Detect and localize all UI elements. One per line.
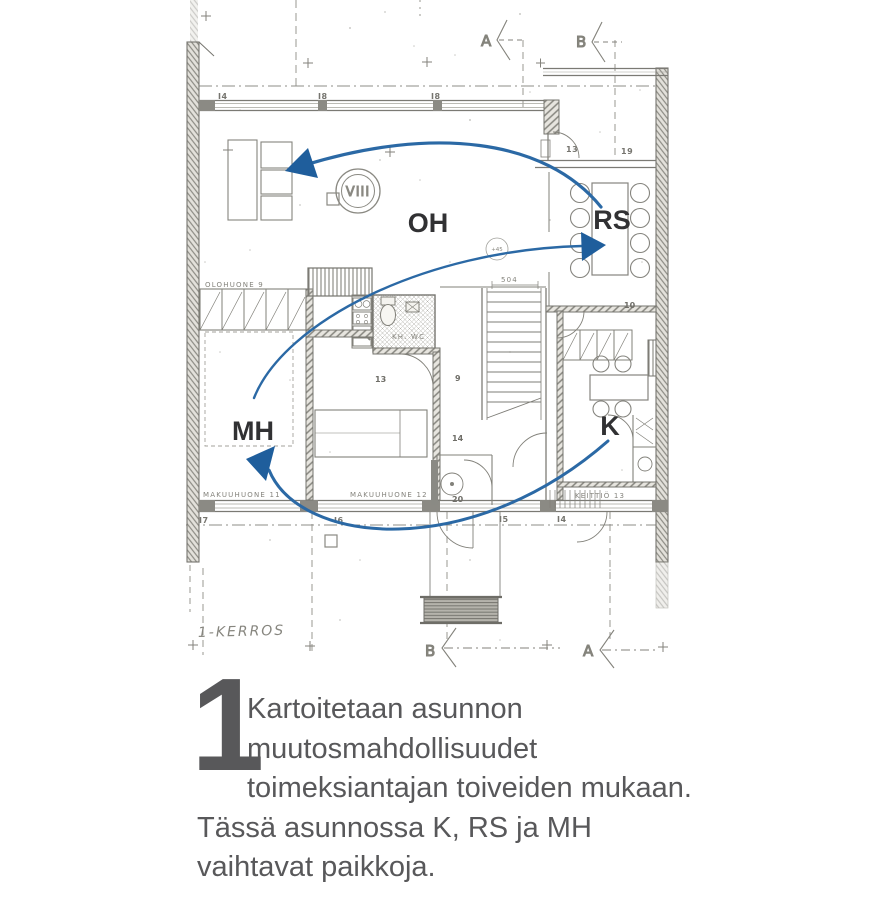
section-b-top-label: B xyxy=(576,33,586,51)
floor-plan-svg: VIII +45 A B B A OLOHUONE 9 MAKUUHUONE 1… xyxy=(0,0,874,680)
floor-level-label: 1-KERROS xyxy=(198,623,286,641)
window-i5: I5 xyxy=(499,515,509,524)
caption-line-5: vaihtavat paikkoja. xyxy=(197,848,817,888)
section-a-bottom-label: A xyxy=(583,642,594,660)
room-label-oh: OH xyxy=(408,208,449,238)
section-b-bottom-label: B xyxy=(425,642,435,660)
floor-plan: VIII +45 A B B A OLOHUONE 9 MAKUUHUONE 1… xyxy=(0,0,874,680)
caption-line-1: Kartoitetaan asunnon xyxy=(247,690,817,730)
step-number: 1 xyxy=(191,675,264,775)
dim-504: 504 xyxy=(501,276,518,284)
window-i8a: I8 xyxy=(318,92,328,101)
num-9: 9 xyxy=(455,374,461,383)
room-label-rs: RS xyxy=(593,205,631,235)
swap-arrowhead-rs xyxy=(581,232,606,261)
stamp-viii: VIII xyxy=(346,185,370,200)
caption: 1 Kartoitetaan asunnon muutosmahdollisuu… xyxy=(197,690,817,888)
num-10: 10 xyxy=(624,301,636,310)
caption-line-2: muutosmahdollisuudet xyxy=(247,730,817,770)
plan-annotations: OLOHUONE 9 MAKUUHUONE 11 MAKUUHUONE 12 K… xyxy=(198,92,636,641)
keittio-label: KEITTIÖ 13 xyxy=(575,491,625,500)
num-14: 14 xyxy=(452,434,464,443)
lamp-label: +45 xyxy=(491,247,503,253)
caption-line-3: toimeksiantajan toiveiden mukaan. xyxy=(247,769,817,809)
section-markers: A B B A xyxy=(425,20,655,668)
section-a-top-label: A xyxy=(481,32,492,50)
window-i7: I7 xyxy=(199,516,209,525)
num-13: 13 xyxy=(375,375,386,384)
makuuhuone12-label: MAKUUHUONE 12 xyxy=(350,491,428,499)
olohuone-label: OLOHUONE 9 xyxy=(205,281,264,289)
num-20: 20 xyxy=(452,495,464,504)
khwc-label: KH. WC xyxy=(392,333,425,341)
window-19: 19 xyxy=(621,147,633,156)
entrance-porch xyxy=(420,512,502,623)
window-i4: I4 xyxy=(218,92,228,101)
window-i4b: I4 xyxy=(557,515,567,524)
caption-line-4: Tässä asunnossa K, RS ja MH xyxy=(197,809,817,849)
room-label-mh: MH xyxy=(232,416,274,446)
room-label-k: K xyxy=(600,411,620,441)
window-i8b: I8 xyxy=(431,92,441,101)
makuuhuone11-label: MAKUUHUONE 11 xyxy=(203,491,281,499)
window-13: 13 xyxy=(566,145,578,154)
